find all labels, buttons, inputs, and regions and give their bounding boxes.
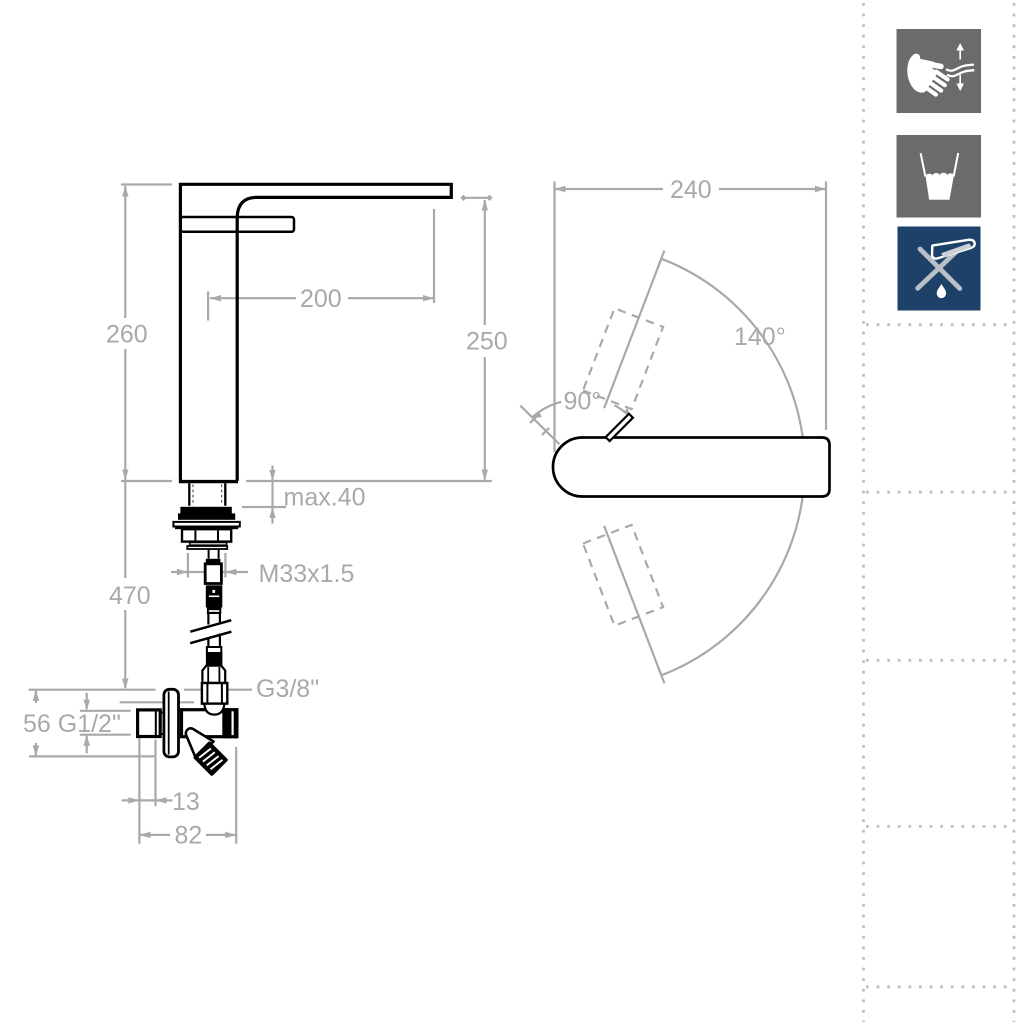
svg-text:82: 82	[175, 822, 203, 850]
svg-text:90°: 90°	[564, 388, 602, 416]
svg-text:max.40: max.40	[284, 484, 366, 512]
svg-text:G3/8": G3/8"	[256, 675, 319, 703]
svg-text:13: 13	[172, 788, 200, 816]
svg-text:140°: 140°	[734, 323, 786, 351]
svg-text:M33x1.5: M33x1.5	[259, 560, 355, 588]
svg-text:200: 200	[300, 285, 342, 313]
svg-text:56 G1/2": 56 G1/2"	[23, 710, 121, 738]
svg-text:240: 240	[670, 176, 712, 204]
svg-text:470: 470	[109, 582, 151, 610]
svg-text:260: 260	[106, 321, 148, 349]
svg-text:250: 250	[466, 328, 508, 356]
